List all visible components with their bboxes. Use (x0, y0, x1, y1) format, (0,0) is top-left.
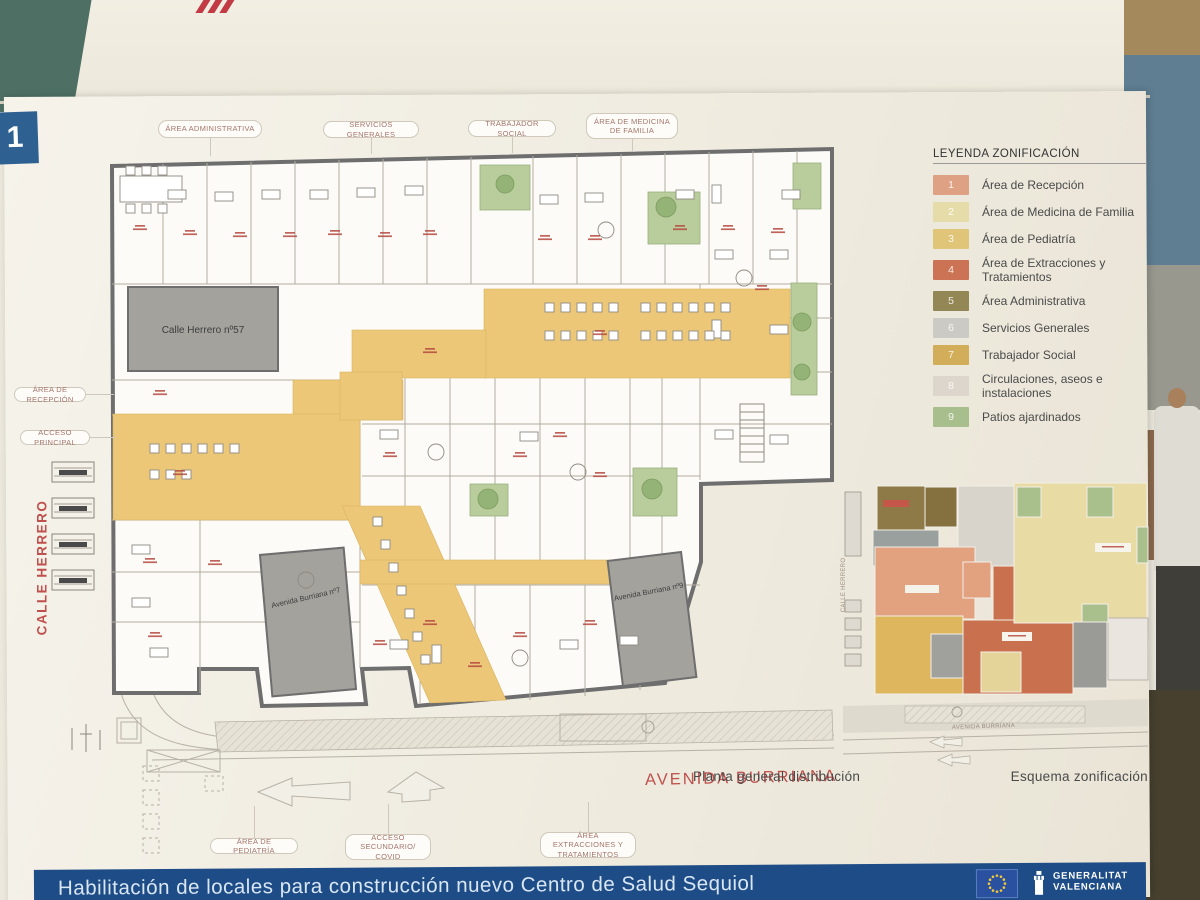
legend-item: 1 Área de Recepción (933, 175, 1147, 195)
generalitat-logo: GENERALITAT VALENCIANA (1032, 870, 1128, 895)
label-area-recepcion: ÁREA DE RECEPCIÓN (14, 387, 86, 402)
legend-item: 5 Área Administrativa (933, 291, 1147, 311)
eu-flag (976, 869, 1018, 898)
org-line-2: VALENCIANA (1053, 882, 1128, 893)
legend-chip-6: 6 (933, 318, 969, 338)
legend-item: 2 Área de Medicina de Familia (933, 202, 1147, 222)
legend-chip-1: 1 (933, 175, 969, 195)
connector-line (90, 437, 116, 438)
connector-line (371, 138, 372, 154)
poster-title: Habilitación de locales para construcció… (34, 863, 976, 900)
label-area-pediatria: ÁREA DE PEDIATRÍA (210, 838, 298, 854)
eu-flag-stars (977, 870, 1017, 897)
legend-title: LEYENDA ZONIFICACIÓN (933, 148, 1147, 164)
legend-chip-4: 4 (933, 260, 969, 280)
block-label-herrero57: Calle Herrero nº57 (162, 325, 245, 336)
legend-item: 9 Patios ajardinados (933, 407, 1147, 427)
label-area-administrativa: ÁREA ADMINISTRATIVA (158, 120, 262, 138)
label-area-medicina-familia: ÁREA DE MEDICINA DE FAMILIA (586, 113, 678, 139)
label-acceso-secundario-covid: ACCESO SECUNDARIO/ COVID (345, 834, 431, 860)
connector-line (254, 806, 255, 838)
title-banner: Habilitación de locales para construcció… (34, 862, 1146, 900)
legend-chip-2: 2 (933, 202, 969, 222)
legend-chip-5: 5 (933, 291, 969, 311)
legend-item: 3 Área de Pediatría (933, 229, 1147, 249)
zoning-legend: LEYENDA ZONIFICACIÓN 1 Área de Recepción… (933, 148, 1147, 434)
label-acceso-principal: ACCESO PRINCIPAL (20, 430, 90, 445)
legend-item: 6 Servicios Generales (933, 318, 1147, 338)
legend-item: 7 Trabajador Social (933, 345, 1147, 365)
legend-chip-7: 7 (933, 345, 969, 365)
legend-chip-9: 9 (933, 407, 969, 427)
legend-item: 4 Área de Extracciones y Tratamientos (933, 256, 1147, 284)
caption-planta-general: Planta general distribución (693, 769, 860, 784)
generalitat-emblem-icon (1032, 871, 1046, 895)
connector-line (210, 138, 211, 156)
legend-item: 8 Circulaciones, aseos e instalaciones (933, 372, 1147, 400)
connector-line (632, 139, 633, 152)
street-name-calle-herrero: CALLE HERRERO (35, 498, 50, 638)
connector-line (86, 394, 114, 395)
caption-esquema-zonificacion: Esquema zonificación (1008, 769, 1148, 784)
connector-line (588, 802, 589, 832)
photo-of-poster: 1 (0, 0, 1200, 900)
label-trabajador-social: TRABAJADOR SOCIAL (468, 120, 556, 137)
label-area-extracciones: ÁREA EXTRACCIONES Y TRATAMIENTOS (540, 832, 636, 858)
connector-line (388, 804, 389, 834)
label-servicios-generales: SERVICIOS GENERALES (323, 121, 419, 138)
connector-line (512, 137, 513, 153)
legend-chip-8: 8 (933, 376, 969, 396)
mini-street-calle-herrero: CALLE HERRERO (841, 555, 847, 615)
legend-chip-3: 3 (933, 229, 969, 249)
